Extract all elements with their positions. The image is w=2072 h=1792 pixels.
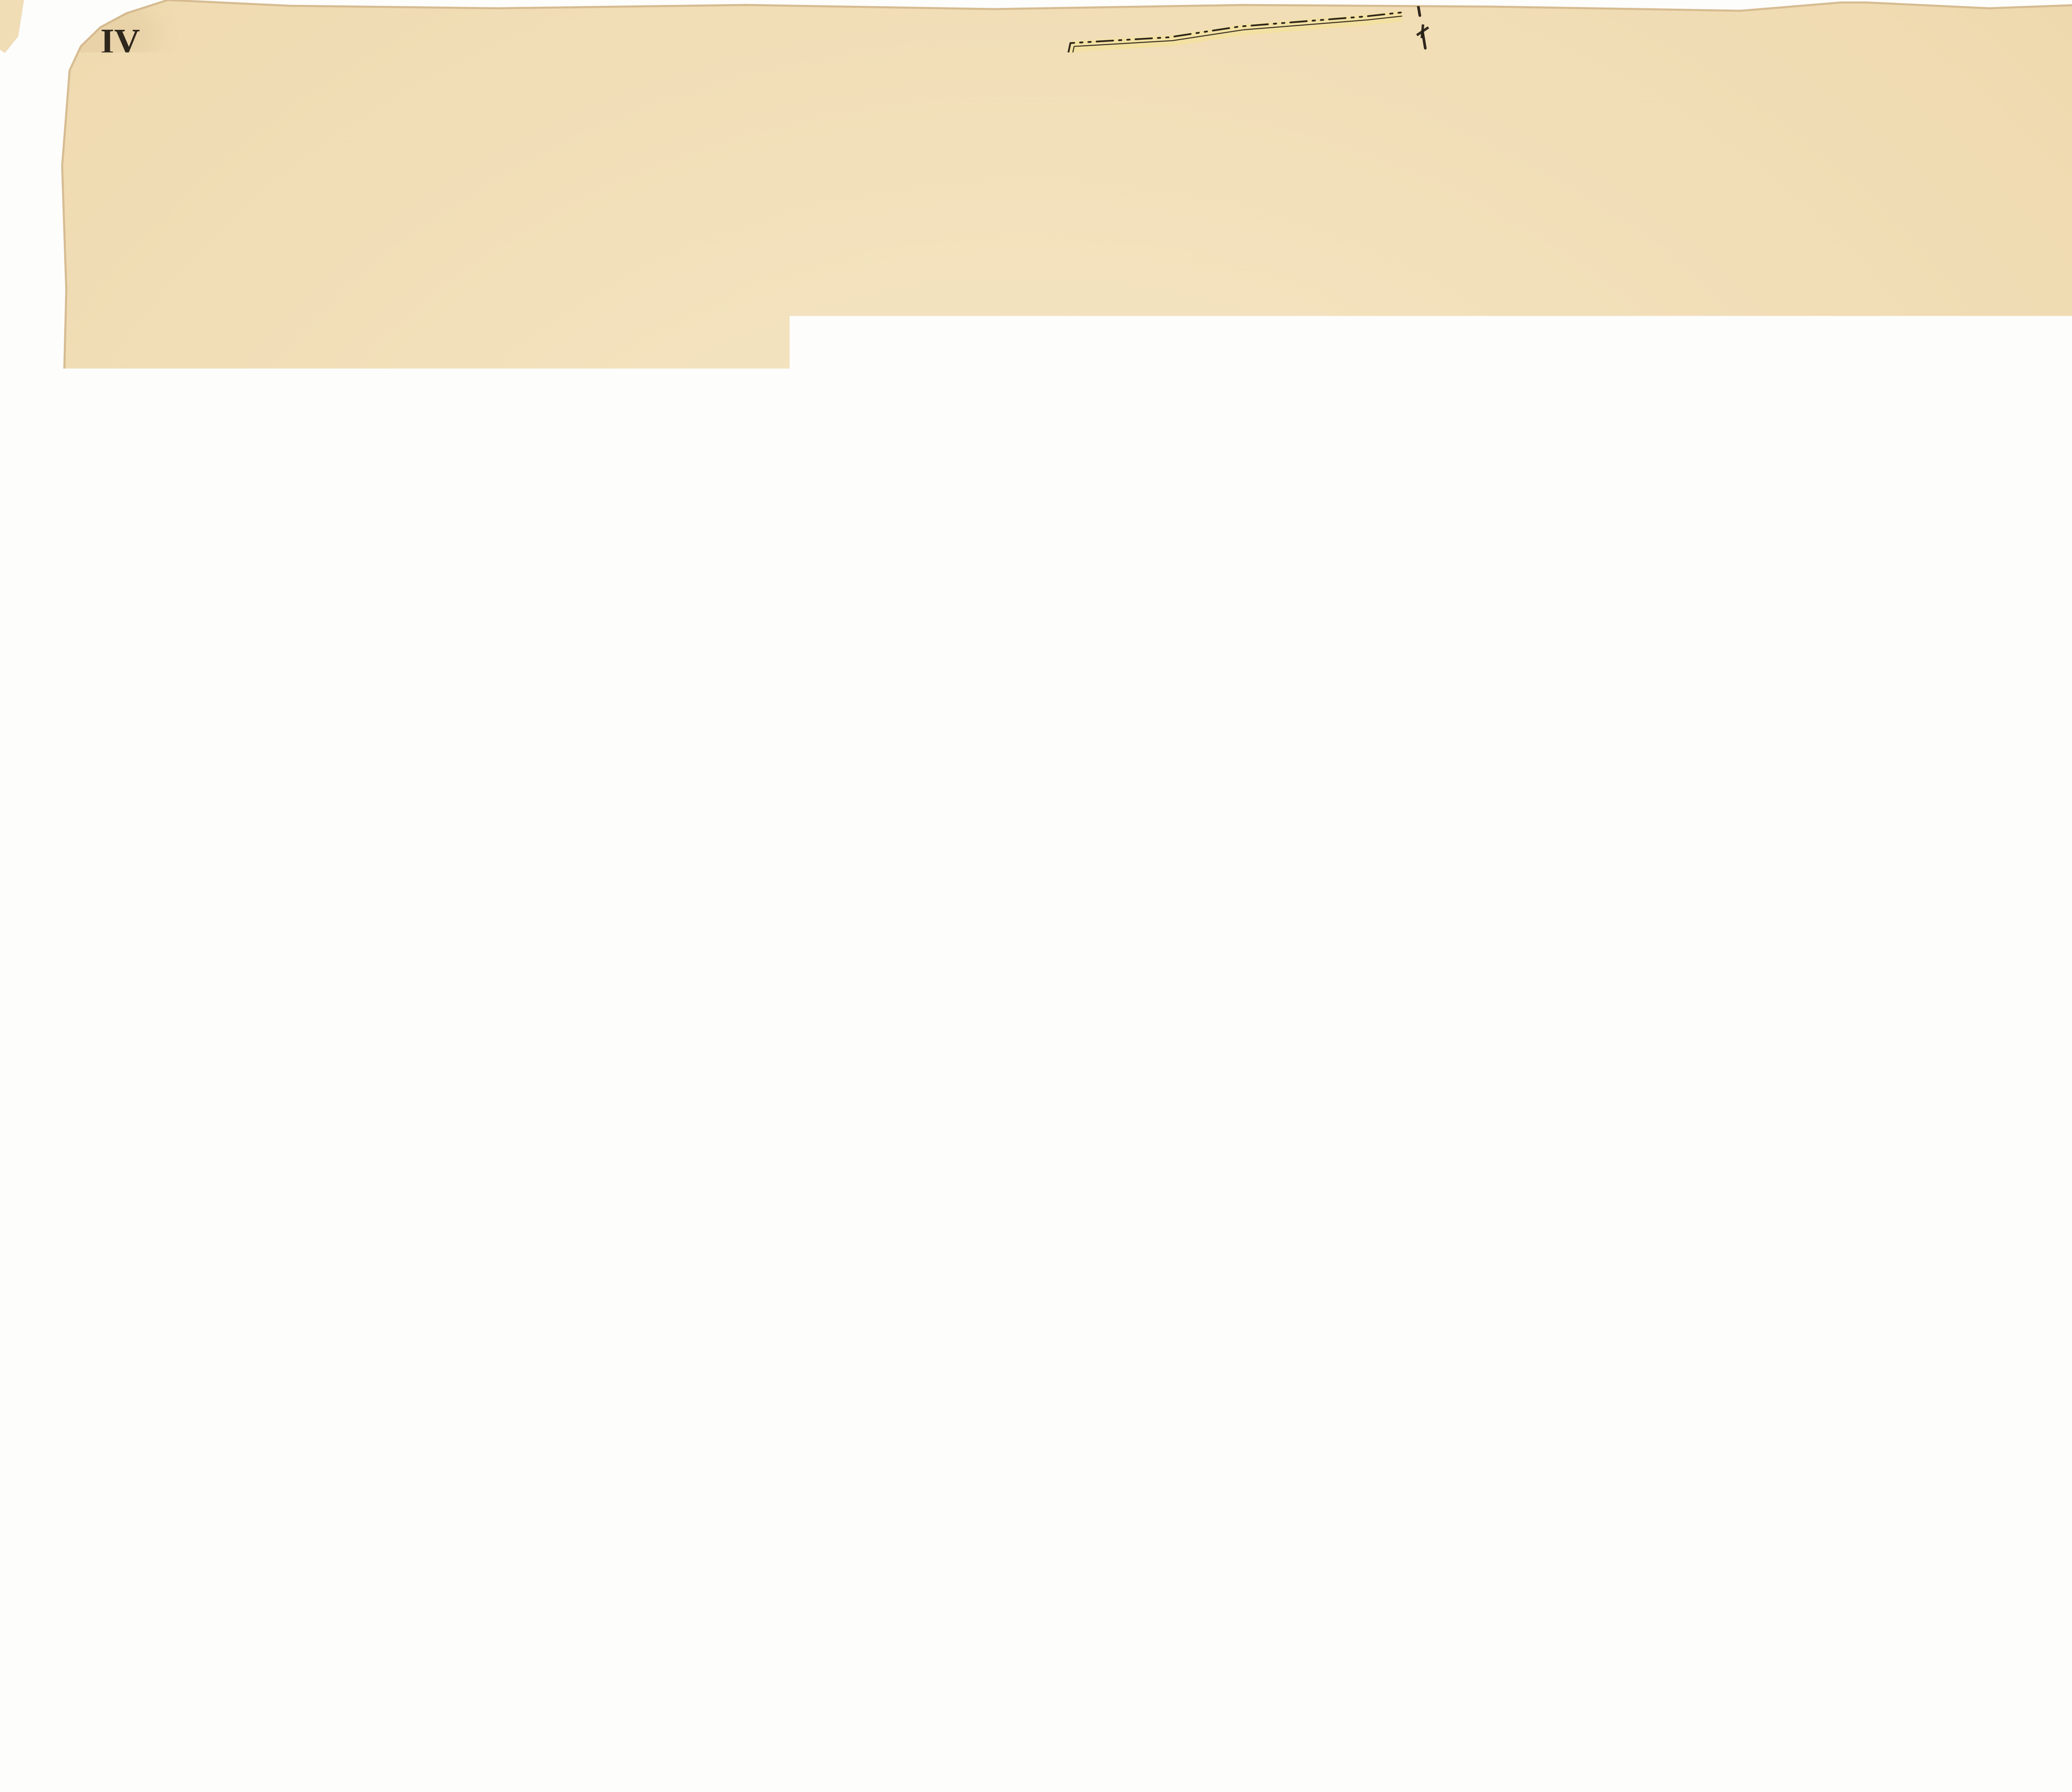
svg-text:a: a (1742, 179, 1749, 195)
svg-text:1303.: 1303. (1088, 850, 1134, 874)
svg-text:IV: IV (100, 21, 140, 61)
svg-text:1020.: 1020. (1442, 1000, 1480, 1021)
svg-text:B: B (1642, 254, 1656, 276)
svg-text:1034.: 1034. (1673, 700, 1712, 721)
svg-text:1033.: 1033. (1760, 577, 1796, 597)
svg-text:1028: 1028 (1629, 227, 1673, 253)
svg-text:1140: 1140 (1799, 75, 1829, 93)
svg-text:1229: 1229 (1934, 57, 1975, 83)
svg-text:1032.: 1032. (1449, 551, 1489, 572)
svg-text:1030.: 1030. (1606, 322, 1644, 343)
svg-text:VALENTANO.: VALENTANO. (73, 164, 190, 188)
svg-text:1022.: 1022. (1262, 756, 1302, 778)
svg-text:1026.: 1026. (1237, 150, 1277, 172)
svg-text:1029: 1029 (1523, 199, 1559, 221)
svg-text:Savonata: Savonata (1845, 397, 2028, 447)
svg-text:1024.: 1024. (1128, 525, 1168, 546)
svg-text:1028/A: 1028/A (1716, 155, 1768, 176)
svg-text:Strada: Strada (1253, 268, 1324, 300)
svg-text:1033.: 1033. (1518, 680, 1558, 701)
svg-text:1021.: 1021. (1405, 794, 1445, 815)
svg-text:1025.: 1025. (1300, 430, 1339, 452)
svg-text:1304.: 1304. (931, 730, 975, 753)
